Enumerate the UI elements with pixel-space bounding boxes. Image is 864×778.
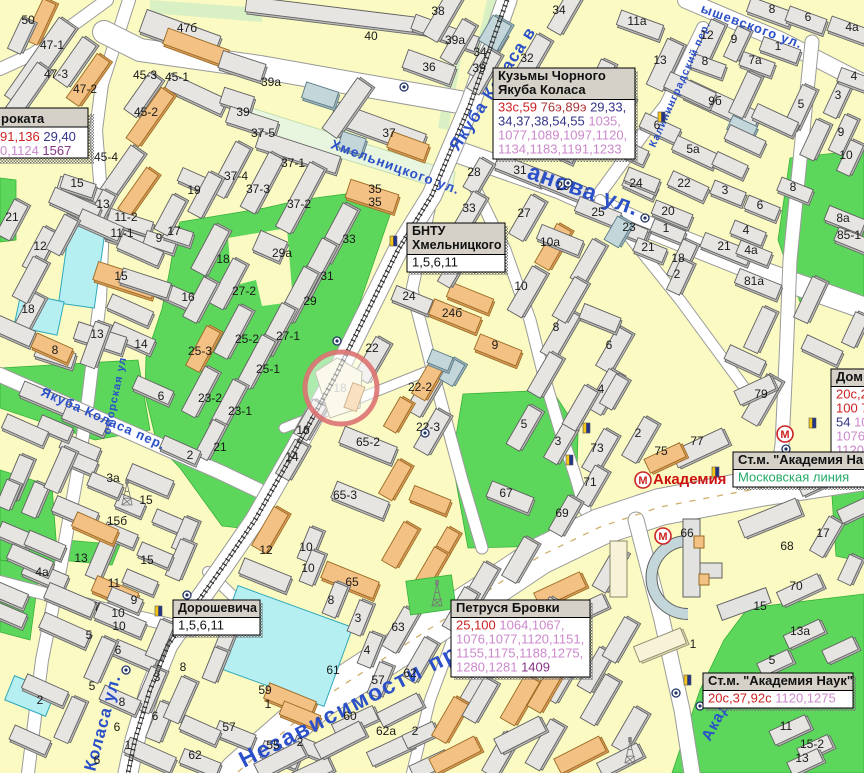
svg-text:4: 4 [743,223,750,237]
svg-text:71: 71 [583,475,597,489]
svg-text:28: 28 [467,165,481,179]
svg-text:2: 2 [297,735,304,749]
svg-text:4: 4 [598,382,605,396]
svg-text:34: 34 [473,45,487,59]
svg-text:29: 29 [303,294,317,308]
svg-text:17: 17 [167,224,181,238]
svg-text:36: 36 [422,60,436,74]
svg-text:Хмельницкого: Хмельницкого [412,238,502,252]
svg-text:10а: 10а [540,235,560,249]
svg-text:16: 16 [296,423,310,437]
svg-text:91,136 29,40: 91,136 29,40 [0,129,76,144]
svg-text:10: 10 [301,561,315,575]
svg-text:3: 3 [722,183,729,197]
svg-text:20с,37,92с 1120,1275: 20с,37,92с 1120,1275 [708,691,836,706]
svg-text:35: 35 [368,182,382,196]
svg-text:77: 77 [690,434,704,448]
svg-text:34,37,38,54,55 1035,: 34,37,38,54,55 1035, [498,114,621,129]
svg-text:5: 5 [769,653,776,667]
svg-text:79: 79 [754,387,768,401]
svg-text:9: 9 [838,125,845,139]
svg-text:3: 3 [154,670,161,684]
svg-text:1280,1281 1409: 1280,1281 1409 [456,660,550,675]
svg-text:Дорошевича: Дорошевича [178,601,258,615]
svg-text:73: 73 [590,441,604,455]
svg-text:1: 1 [125,738,132,752]
svg-text:12: 12 [33,239,47,253]
svg-text:15-2: 15-2 [800,737,824,751]
svg-text:1155,1175,1188,1275,: 1155,1175,1188,1275, [456,646,583,661]
svg-text:6: 6 [114,720,121,734]
svg-text:54 10: 54 10 [836,415,864,430]
svg-text:37-5: 37-5 [251,126,275,140]
svg-text:37-1: 37-1 [281,156,305,170]
svg-text:6: 6 [115,643,122,657]
svg-text:15: 15 [753,599,767,613]
svg-text:63: 63 [391,620,405,634]
svg-text:62а: 62а [376,724,396,738]
svg-text:45-2: 45-2 [134,105,158,119]
svg-text:3: 3 [555,434,562,448]
svg-text:Кузьмы Чорного: Кузьмы Чорного [498,68,606,83]
svg-text:47-3: 47-3 [44,67,68,81]
svg-text:21: 21 [5,210,19,224]
svg-text:31: 31 [513,163,527,177]
svg-text:24б: 24б [442,306,462,320]
svg-text:75: 75 [654,444,668,458]
svg-text:8: 8 [769,2,776,16]
svg-text:1: 1 [265,697,272,711]
svg-text:8: 8 [328,593,335,607]
svg-text:3: 3 [835,88,842,102]
svg-text:Петруся Бровки: Петруся Бровки [456,600,560,615]
svg-text:32: 32 [520,51,534,65]
svg-text:33: 33 [462,201,476,215]
svg-text:8а: 8а [836,211,850,225]
svg-text:45-3: 45-3 [133,68,157,82]
svg-text:81а: 81а [744,274,764,288]
svg-text:50: 50 [21,13,35,27]
svg-text:10: 10 [111,606,125,620]
svg-text:31: 31 [320,269,334,283]
svg-text:14: 14 [134,337,148,351]
svg-text:25-1: 25-1 [256,362,280,376]
svg-text:1076,: 1076, [836,429,864,444]
svg-text:23-1: 23-1 [228,404,252,418]
svg-text:7а: 7а [748,53,762,67]
svg-text:47-2: 47-2 [73,82,97,96]
svg-text:2: 2 [674,267,681,281]
svg-text:40: 40 [364,29,378,43]
svg-text:1: 1 [690,637,697,651]
svg-text:8: 8 [52,343,59,357]
svg-text:10: 10 [299,540,313,554]
svg-text:1: 1 [663,221,670,235]
svg-text:1076,1077,1120,1151,: 1076,1077,1120,1151, [456,632,584,647]
svg-text:100 7: 100 7 [836,401,864,416]
svg-text:24: 24 [629,176,643,190]
svg-text:61: 61 [326,663,340,677]
svg-text:27-1: 27-1 [276,329,300,343]
svg-text:4: 4 [851,69,858,83]
svg-text:65-3: 65-3 [333,488,357,502]
svg-text:35: 35 [368,195,382,209]
svg-text:62: 62 [188,748,202,762]
svg-text:6: 6 [805,10,812,24]
svg-text:роката: роката [1,111,45,126]
svg-text:37-4: 37-4 [224,169,248,183]
svg-text:9: 9 [731,32,738,46]
svg-text:13: 13 [74,551,88,565]
svg-text:12: 12 [259,543,273,557]
svg-text:8: 8 [180,660,187,674]
svg-text:3а: 3а [106,471,120,485]
svg-text:5: 5 [89,679,96,693]
svg-text:8: 8 [790,180,797,194]
svg-text:22: 22 [365,341,379,355]
svg-text:2: 2 [187,448,194,462]
svg-text:0,1124 1567: 0,1124 1567 [0,143,71,158]
svg-text:60: 60 [343,709,357,723]
svg-text:69: 69 [555,506,569,520]
svg-text:4: 4 [364,643,371,657]
svg-text:М: М [658,531,667,543]
svg-text:9: 9 [156,231,163,245]
svg-text:15: 15 [139,493,153,507]
svg-text:7: 7 [94,600,101,614]
svg-text:9: 9 [492,338,499,352]
svg-text:25-3: 25-3 [188,344,212,358]
svg-text:23-2: 23-2 [198,391,222,405]
svg-text:45-1: 45-1 [165,70,189,84]
svg-text:4а: 4а [35,565,49,579]
svg-text:27: 27 [517,206,531,220]
svg-text:4а: 4а [744,243,758,257]
svg-text:15: 15 [70,176,84,190]
svg-text:8: 8 [702,54,709,68]
svg-text:47-1: 47-1 [40,38,64,52]
svg-text:25: 25 [591,205,605,219]
svg-text:55: 55 [266,738,280,752]
svg-text:13: 13 [795,751,809,765]
svg-text:57: 57 [371,673,385,687]
svg-text:Ст.м. "Академия На: Ст.м. "Академия На [738,452,864,467]
svg-text:10: 10 [112,619,126,633]
svg-text:37: 37 [382,126,396,140]
svg-text:5: 5 [521,417,528,431]
svg-text:18: 18 [21,302,35,316]
svg-text:19: 19 [187,183,201,197]
svg-text:65: 65 [345,575,359,589]
svg-text:14: 14 [285,450,299,464]
svg-text:Дом: Дом [836,369,863,384]
svg-text:БНТУ: БНТУ [412,224,446,238]
svg-text:5: 5 [86,628,93,642]
svg-text:21: 21 [213,440,227,454]
svg-text:47б: 47б [177,21,197,35]
svg-text:2: 2 [635,426,642,440]
svg-text:11а: 11а [627,14,646,28]
svg-text:18: 18 [671,251,685,265]
svg-text:24: 24 [402,289,416,303]
svg-text:39: 39 [472,61,486,75]
svg-text:12: 12 [700,28,714,42]
svg-text:1,5,6,11: 1,5,6,11 [178,618,224,633]
svg-text:6: 6 [606,338,613,352]
svg-text:21: 21 [717,239,731,253]
svg-text:33с,59 76э,89э 29,33,: 33с,59 76э,89э 29,33, [498,100,626,115]
svg-text:65-2: 65-2 [356,435,380,449]
svg-text:33: 33 [342,232,356,246]
svg-text:37-3: 37-3 [246,182,270,196]
svg-text:8: 8 [553,320,560,334]
svg-text:6: 6 [757,198,764,212]
svg-text:3: 3 [355,611,362,625]
svg-text:2: 2 [37,693,44,707]
svg-text:39: 39 [236,105,250,119]
svg-text:15: 15 [114,269,128,283]
svg-text:5а: 5а [686,142,700,156]
svg-text:25,100 1064,1067,: 25,100 1064,1067, [456,618,564,633]
svg-text:27-2: 27-2 [232,284,256,298]
svg-text:62: 62 [403,666,417,680]
svg-text:9: 9 [131,593,138,607]
svg-text:38: 38 [431,4,445,18]
svg-text:1077,1089,1097,1120,: 1077,1089,1097,1120, [498,128,627,143]
svg-text:М: М [780,429,789,441]
svg-text:59: 59 [258,683,272,697]
svg-text:11: 11 [780,719,793,733]
svg-text:Московская линия: Московская линия [738,470,849,485]
svg-text:6: 6 [94,753,101,767]
svg-text:22-2: 22-2 [408,380,432,394]
svg-text:15б: 15б [107,514,127,528]
svg-text:17: 17 [816,526,830,540]
svg-text:85-1: 85-1 [837,228,861,242]
svg-text:21: 21 [641,240,655,254]
svg-text:6: 6 [152,709,159,723]
svg-text:39а: 39а [445,33,465,47]
svg-text:6: 6 [158,389,165,403]
svg-text:20с,2: 20с,2 [836,387,864,402]
svg-text:67: 67 [499,486,513,500]
svg-text:57: 57 [222,720,236,734]
svg-text:13: 13 [96,197,110,211]
svg-text:Ст.м. "Академия Наук": Ст.м. "Академия Наук" [708,673,853,688]
svg-text:20: 20 [661,204,675,218]
svg-text:22: 22 [677,176,691,190]
svg-text:4а: 4а [845,20,859,34]
svg-text:66: 66 [680,526,694,540]
svg-text:37-2: 37-2 [287,197,311,211]
svg-text:Академия: Академия [653,471,726,488]
svg-text:М: М [638,475,647,487]
svg-text:1,5,6,11: 1,5,6,11 [412,255,458,270]
svg-text:11: 11 [108,576,121,590]
svg-text:13: 13 [653,53,667,67]
svg-text:18: 18 [216,252,230,266]
svg-text:39а: 39а [261,75,281,89]
svg-text:16: 16 [181,290,195,304]
svg-text:45-4: 45-4 [94,150,118,164]
svg-text:11-1: 11-1 [110,226,133,240]
svg-text:2: 2 [412,724,419,738]
svg-text:1: 1 [775,39,782,53]
svg-text:13: 13 [90,327,104,341]
svg-text:34: 34 [552,3,566,17]
svg-text:15: 15 [140,553,154,567]
svg-text:5: 5 [798,97,805,111]
svg-text:29а: 29а [272,246,292,260]
svg-text:8: 8 [119,695,126,709]
svg-text:13а: 13а [790,624,810,638]
svg-text:10: 10 [839,148,853,162]
svg-text:Якуба Коласа: Якуба Коласа [498,82,586,97]
svg-text:10: 10 [514,279,528,293]
svg-text:25-2: 25-2 [235,332,259,346]
svg-text:9б: 9б [708,94,722,108]
svg-text:1134,1183,1191,1233: 1134,1183,1191,1233 [498,142,622,157]
svg-text:11-2: 11-2 [114,210,137,224]
svg-text:70: 70 [789,579,803,593]
svg-text:23: 23 [622,220,636,234]
svg-text:68: 68 [780,539,794,553]
